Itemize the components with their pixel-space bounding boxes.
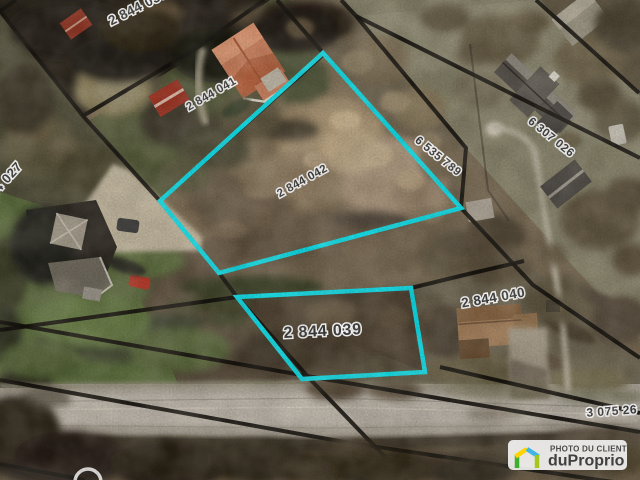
svg-text:duProprio: duProprio (548, 453, 625, 470)
